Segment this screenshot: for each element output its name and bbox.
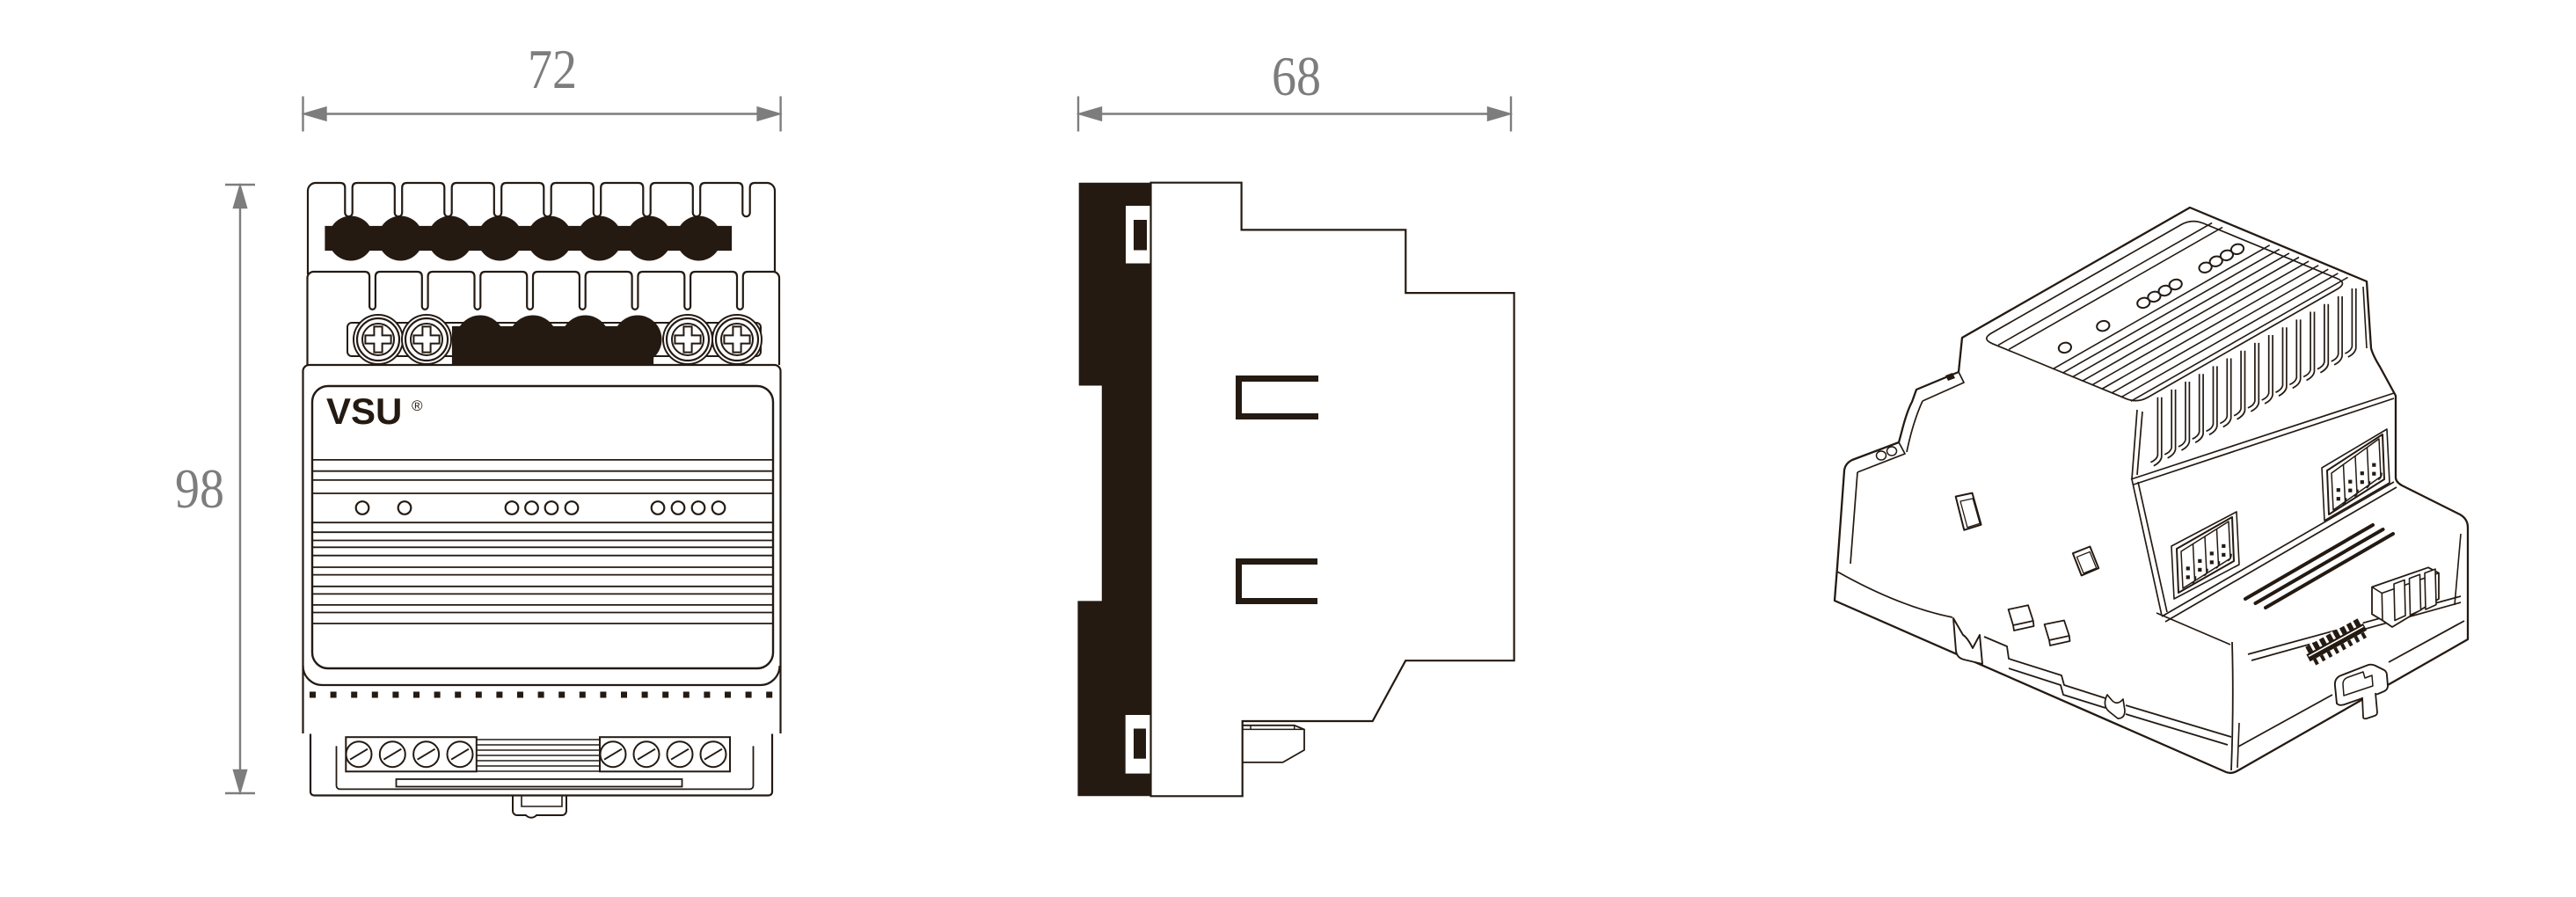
svg-text:®: ® [412, 397, 423, 414]
svg-text:98: 98 [175, 457, 224, 520]
svg-text:VSU: VSU [326, 390, 402, 432]
svg-text:68: 68 [1272, 45, 1321, 107]
svg-text:72: 72 [528, 38, 577, 100]
